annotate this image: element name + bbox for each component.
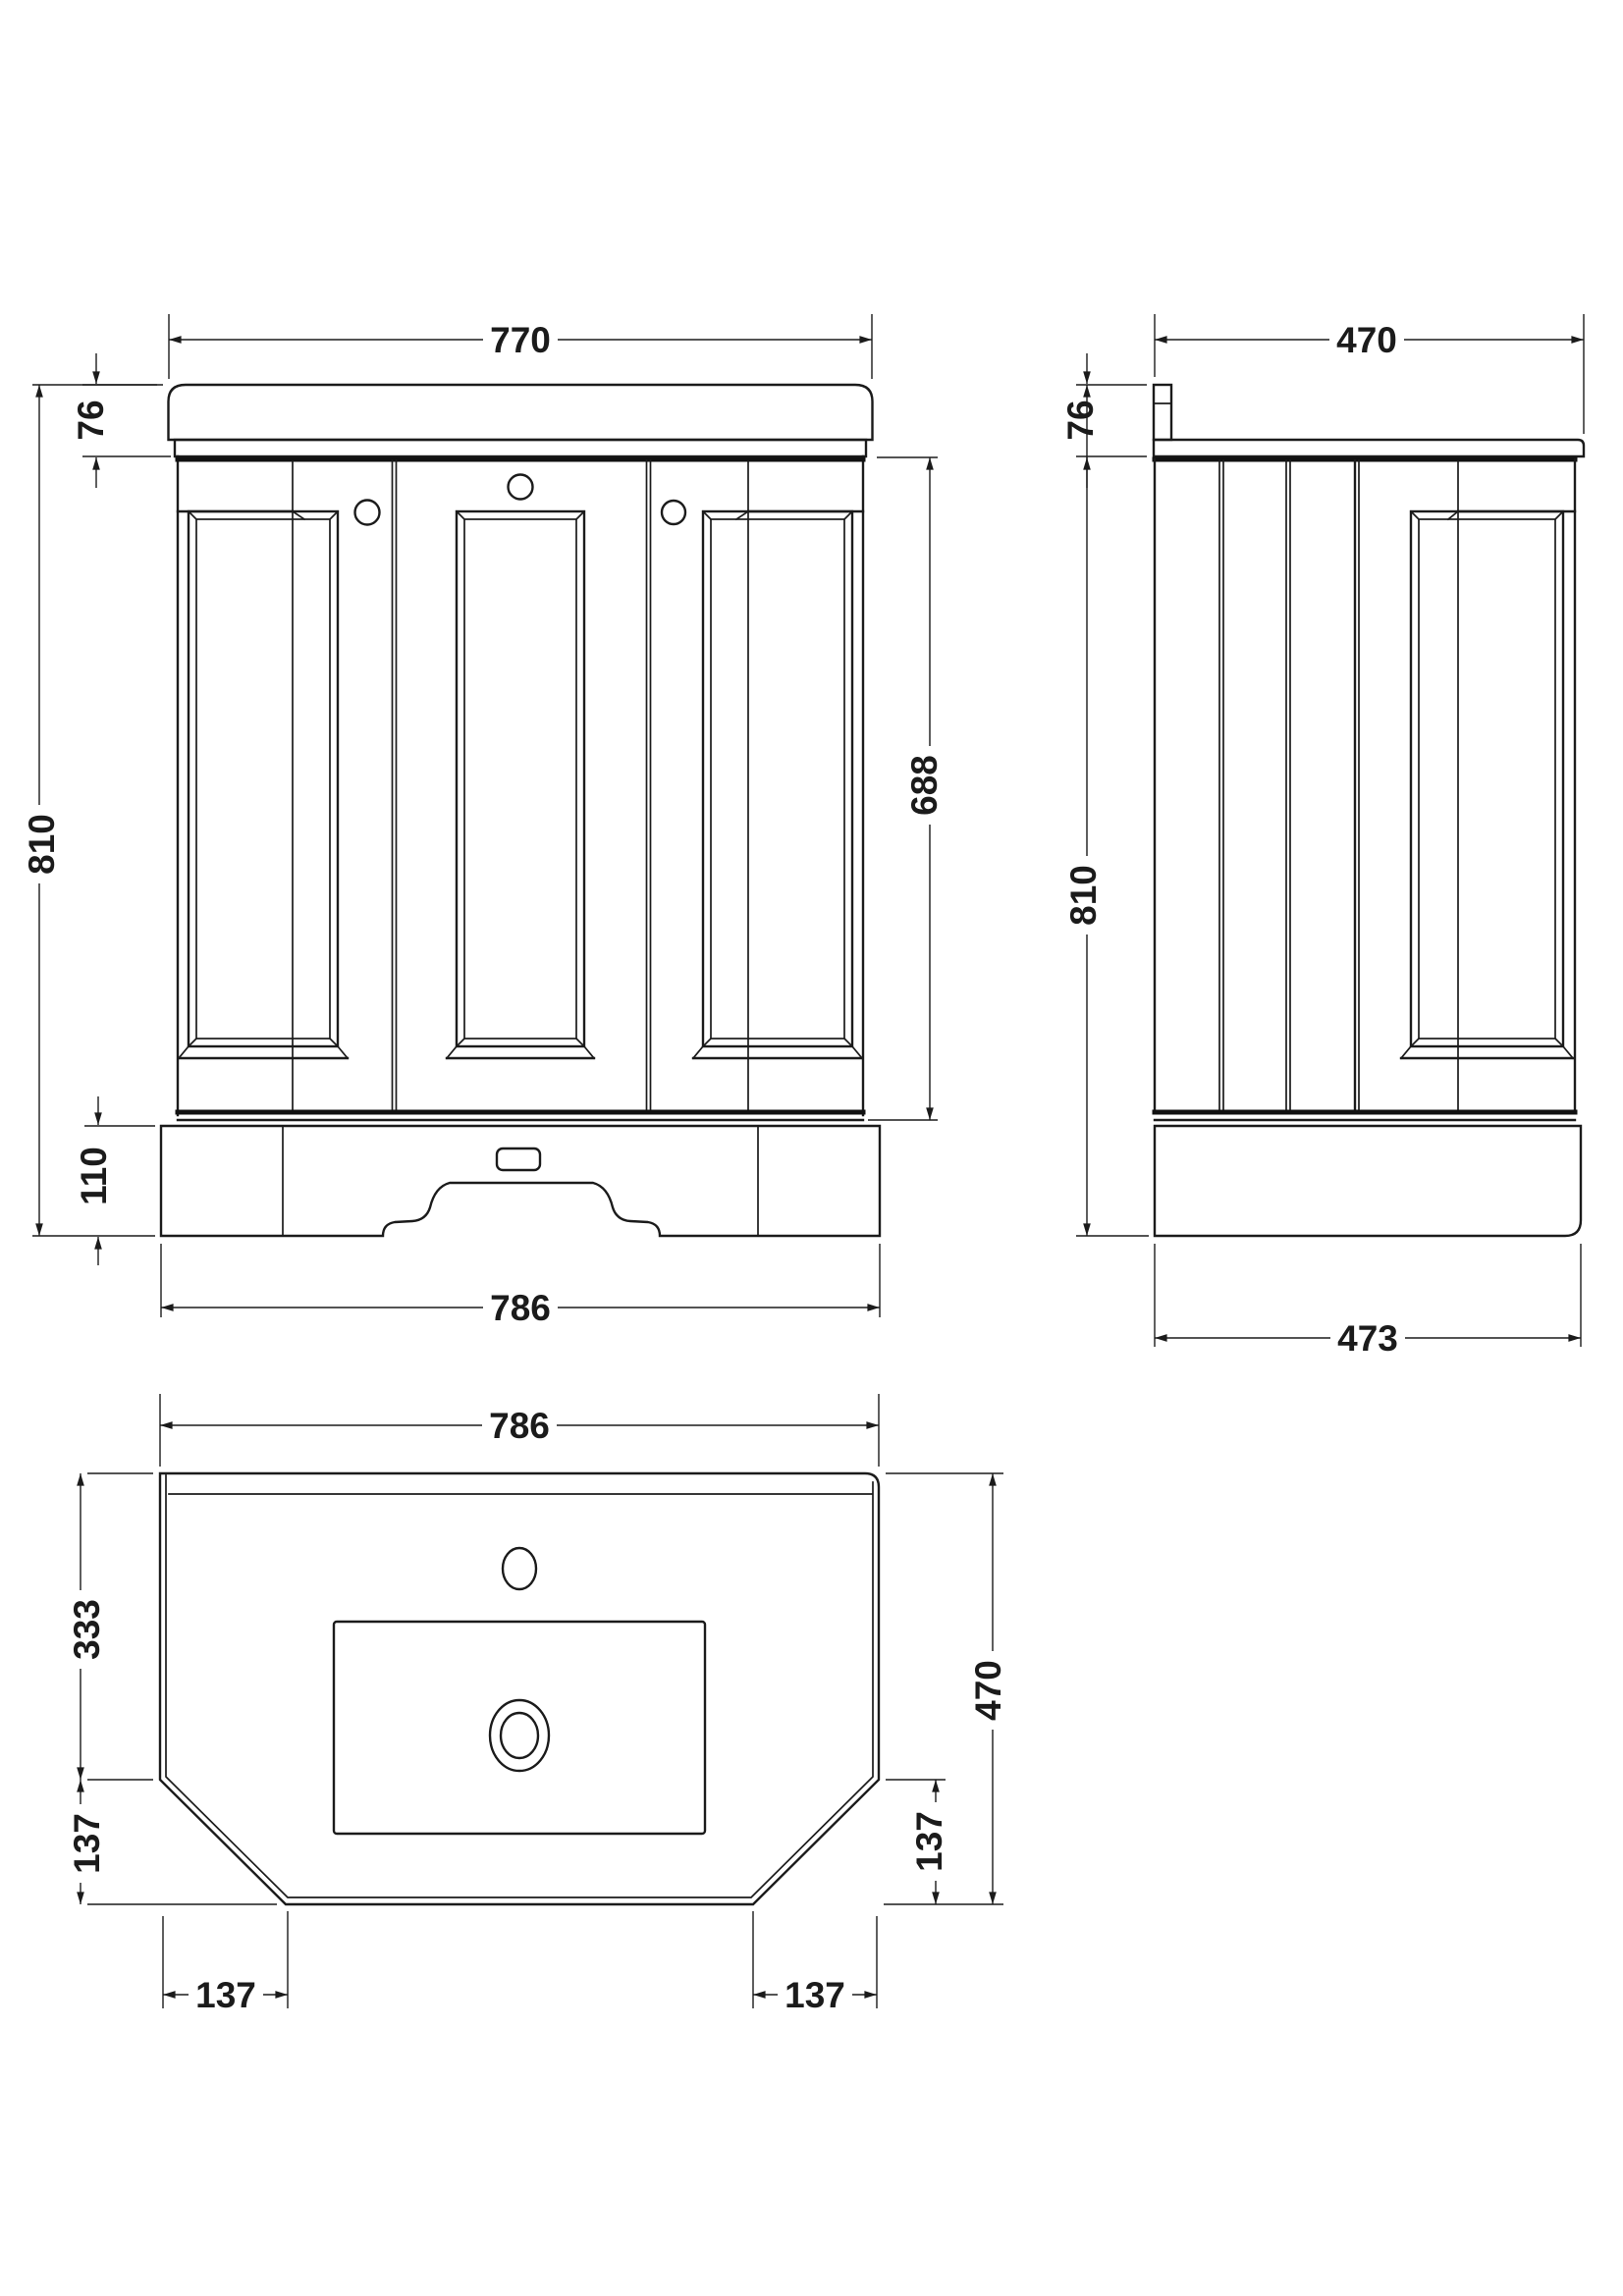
waste-drain [490,1700,549,1771]
front-panel-bases [179,1046,862,1058]
side-depth-bottom-label: 473 [1337,1318,1398,1359]
plan-depth-total-label: 470 [968,1660,1008,1721]
technical-drawing: 770 76 810 [0,0,1623,2296]
side-upstand [1154,385,1171,440]
front-dim-width-top: 770 [169,314,872,379]
front-width-bottom-label: 786 [490,1288,551,1328]
side-dim-height-total: 810 [1063,385,1149,1236]
side-counter-height-label: 76 [1060,400,1101,440]
plan-chamfer-left-v-label: 137 [67,1813,107,1874]
front-door-gap-right [647,460,651,1109]
plan-view: 786 333 137 [67,1394,1008,2015]
plan-width-top-label: 786 [489,1406,550,1446]
front-plinth-height-label: 110 [74,1147,114,1205]
side-depth-top-label: 470 [1336,320,1397,360]
front-panel-middle [457,511,584,1046]
front-dim-plinth-height: 110 [74,1096,155,1265]
front-dim-cabinet-height: 688 [868,457,945,1120]
front-door-gap-left [393,460,397,1109]
front-counter-height-label: 76 [71,400,111,440]
plan-dim-chamfer-right-h: 137 [753,1911,877,2015]
side-plinth [1155,1126,1581,1236]
side-dimensions: 470 76 810 [1060,314,1584,1359]
door-knob-right [662,501,685,524]
door-knob-center [509,475,533,500]
plan-chamfer-right-h-label: 137 [784,1975,845,2015]
front-panel-left [189,511,338,1046]
plan-dimensions: 786 333 137 [67,1394,1008,2015]
plan-dim-chamfer-left-v: 137 [67,1780,277,1904]
front-cabinet [178,456,863,1120]
front-counter-lip [175,440,866,456]
side-counter-top [1154,385,1584,456]
front-dim-height-total: 810 [22,385,157,1236]
plan-dim-chamfer-right-v: 137 [886,1780,949,1904]
plan-chamfer-right-v-label: 137 [909,1811,949,1872]
front-height-total-label: 810 [22,814,62,875]
plan-basin-back-label: 333 [67,1599,107,1660]
side-height-total-label: 810 [1063,865,1104,926]
door-knob-left [355,501,380,525]
plan-dim-chamfer-left-h: 137 [163,1911,288,2015]
side-dim-depth-top: 470 [1155,314,1584,434]
side-dim-depth-bottom: 473 [1155,1244,1581,1359]
plan-chamfer-left-h-label: 137 [195,1975,256,2015]
front-width-top-label: 770 [490,320,551,360]
front-plinth-slot [497,1148,540,1170]
front-dim-counter-height: 76 [71,353,171,488]
front-view: 770 76 810 [22,314,945,1328]
front-dim-width-bottom: 786 [161,1244,880,1328]
front-plinth [161,1126,880,1236]
plan-basin-outline [160,1473,879,1904]
side-cabinet [1155,459,1575,1120]
plan-dim-basin-back: 333 [67,1473,153,1780]
drawing-sheet: 770 76 810 [0,0,1623,2296]
front-panel-right [703,511,852,1046]
side-view: 470 76 810 [1060,314,1584,1359]
front-counter-top [169,385,873,440]
side-dim-counter-height: 76 [1060,353,1147,488]
side-panel-joints [1219,460,1458,1111]
basin-bowl [334,1622,705,1834]
front-cabinet-height-label: 688 [904,755,945,816]
tap-hole [503,1548,536,1589]
plan-dim-width-top: 786 [160,1394,879,1467]
side-recessed-panel [1401,511,1573,1058]
